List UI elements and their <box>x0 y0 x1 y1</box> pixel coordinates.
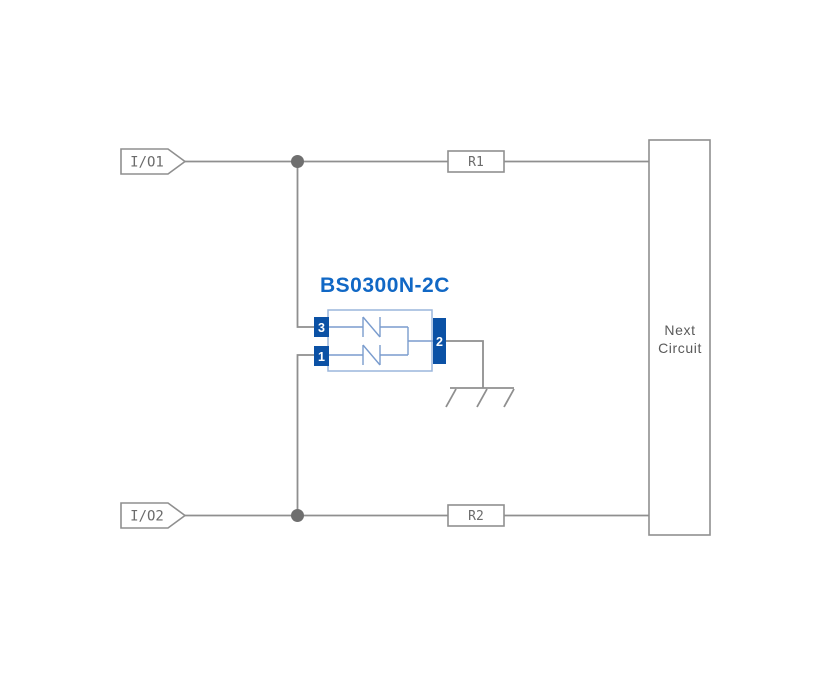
io2-label: I/O2 <box>130 509 164 525</box>
pin3-number: 3 <box>318 321 325 335</box>
wire-pin2-to-ground <box>446 341 483 388</box>
component-pin-2: 2 <box>433 318 446 364</box>
io2-tag: I/O2 <box>121 503 185 528</box>
component-pin-3: 3 <box>314 317 329 337</box>
ground-hatch-2 <box>477 389 487 407</box>
ground-hatch-3 <box>504 389 514 407</box>
component-pin-1: 1 <box>314 346 329 366</box>
io1-label: I/O1 <box>130 155 164 171</box>
io1-tag: I/O1 <box>121 149 185 174</box>
pin2-number: 2 <box>436 335 443 349</box>
next-circuit-label-line2: Circuit <box>658 340 702 356</box>
schematic-svg: I/O1 I/O2 R1 R2 Next Circuit BS0300N-2C <box>0 0 832 675</box>
wire-junction-to-pin1 <box>298 355 315 516</box>
junction-dot-top <box>291 155 304 168</box>
resistor-r2: R2 <box>448 505 504 526</box>
component-title: BS0300N-2C <box>320 274 450 297</box>
resistor-r1-label: R1 <box>468 155 484 170</box>
resistor-r1: R1 <box>448 151 504 172</box>
resistor-r2-label: R2 <box>468 509 484 524</box>
pin1-number: 1 <box>318 350 325 364</box>
wire-junction-to-pin3 <box>298 162 315 328</box>
next-circuit-block: Next Circuit <box>649 140 710 535</box>
ground-hatch-1 <box>446 389 456 407</box>
next-circuit-label-line1: Next <box>664 322 695 338</box>
circuit-diagram-canvas: I/O1 I/O2 R1 R2 Next Circuit BS0300N-2C <box>0 0 832 675</box>
junction-dot-bottom <box>291 509 304 522</box>
tvs-component: BS0300N-2C <box>314 274 450 371</box>
ground-icon <box>446 388 514 407</box>
